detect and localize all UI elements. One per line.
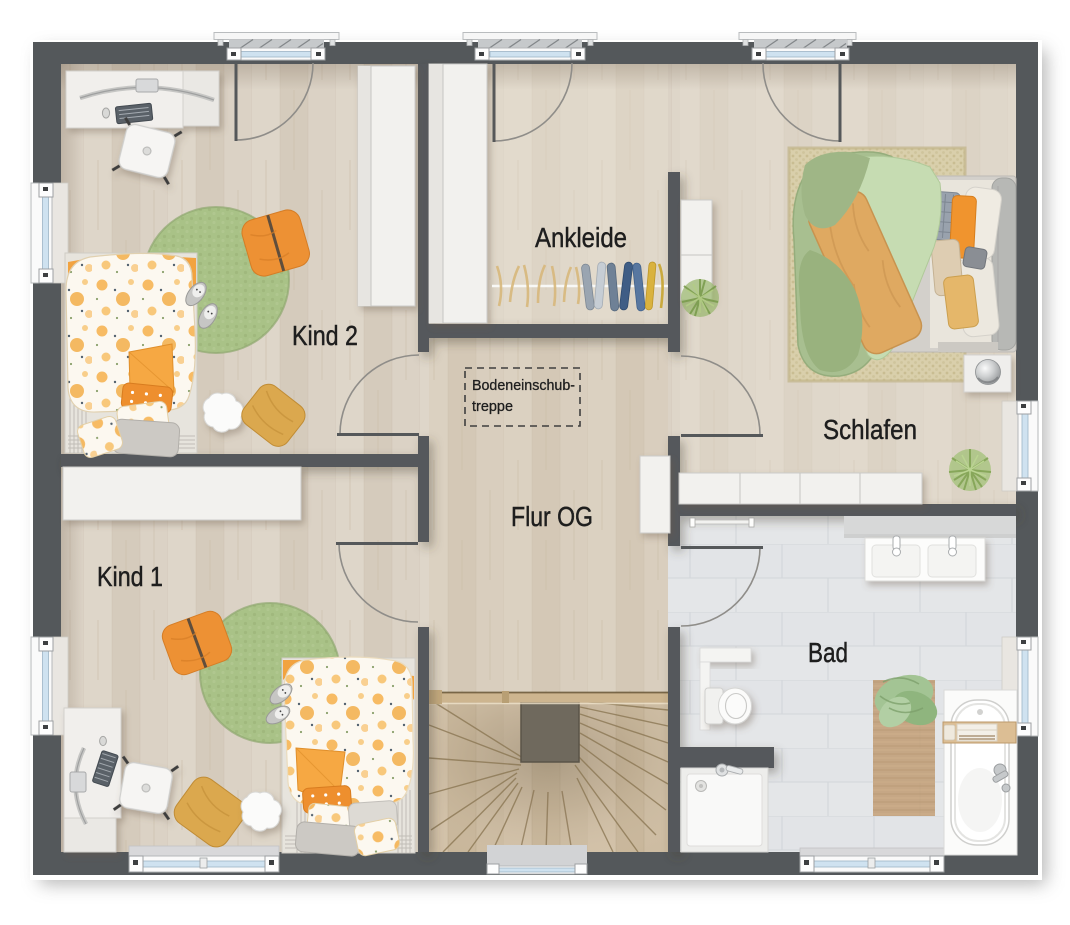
svg-text:Flur OG: Flur OG	[511, 501, 593, 532]
svg-text:Schlafen: Schlafen	[823, 414, 917, 445]
svg-text:Kind 2: Kind 2	[292, 320, 358, 351]
svg-text:Bad: Bad	[808, 637, 848, 668]
svg-text:treppe: treppe	[472, 398, 513, 415]
svg-text:Kind 1: Kind 1	[97, 561, 163, 592]
svg-text:Ankleide: Ankleide	[535, 222, 627, 253]
svg-text:Bodeneinschub-: Bodeneinschub-	[472, 377, 575, 394]
